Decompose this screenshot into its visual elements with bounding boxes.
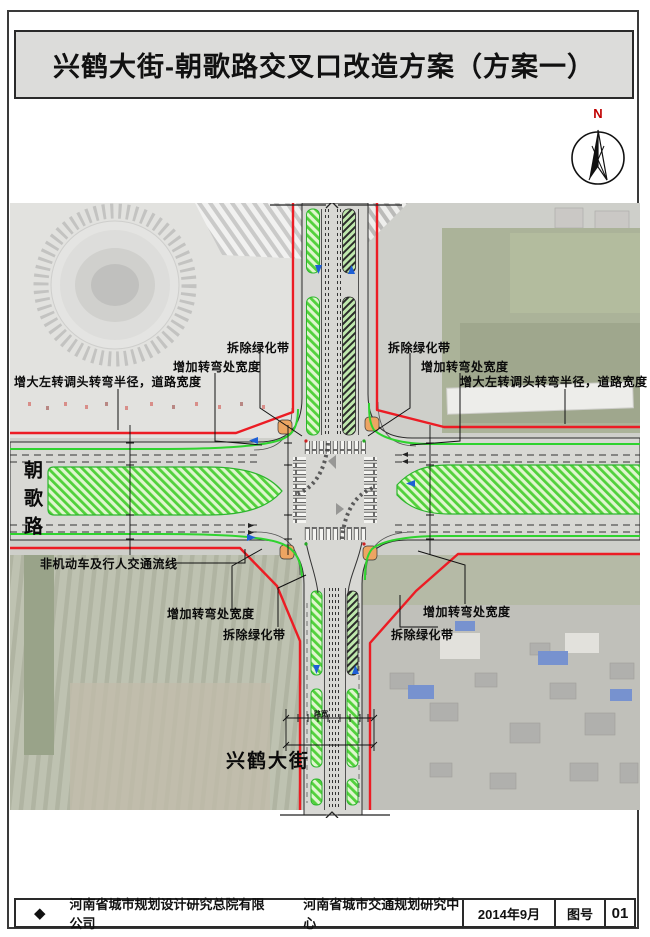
dimension-label: 路宽 [314, 709, 328, 719]
callout-lower-left-nonmotor-flow: 非机动车及行人交通流线 [40, 555, 178, 572]
road-label-south: 兴鹤大街 [226, 746, 310, 773]
company-logo-diamond-icon: ◆ [34, 906, 46, 921]
callout-upper-left-enlarge-radius: 增大左转调头转弯半径，道路宽度 [14, 373, 202, 390]
footer-org1: 河南省城市规划设计研究总院有限公司 [70, 894, 278, 932]
callout-lower-left-demolish-greenbelt: 拆除绿化带 [223, 626, 286, 643]
title-block: 兴鹤大街-朝歌路交叉口改造方案（方案一） [14, 30, 634, 99]
page-title: 兴鹤大街-朝歌路交叉口改造方案（方案一） [53, 45, 595, 84]
callout-upper-right-enlarge-radius: 增大左转调头转弯半径，道路宽度 [460, 373, 648, 390]
drawing-sheet: 兴鹤大街-朝歌路交叉口改造方案（方案一） N [0, 0, 650, 937]
plan-drawing [10, 203, 640, 818]
north-label: N [556, 106, 640, 121]
callout-upper-right-demolish-greenbelt: 拆除绿化带 [388, 339, 451, 356]
road-label-west: 朝歌路 [18, 460, 45, 544]
footer-orgs: ◆ 河南省城市规划设计研究总院有限公司 河南省城市交通规划研究中心 [16, 900, 462, 926]
footer-sheet-label: 图号 [554, 900, 604, 926]
map-canvas [10, 203, 640, 818]
callout-lower-right-widen-turn: 增加转弯处宽度 [423, 603, 511, 620]
callout-upper-left-demolish-greenbelt: 拆除绿化带 [227, 339, 290, 356]
footer-date: 2014年9月 [462, 900, 554, 926]
callout-lower-left-widen-turn: 增加转弯处宽度 [167, 605, 255, 622]
callout-lower-right-demolish-greenbelt: 拆除绿化带 [391, 626, 454, 643]
north-arrow: N [556, 106, 640, 192]
footer-sheet-number: 01 [604, 900, 634, 926]
footer-title-bar: ◆ 河南省城市规划设计研究总院有限公司 河南省城市交通规划研究中心 2014年9… [14, 898, 636, 928]
footer-org2: 河南省城市交通规划研究中心 [303, 894, 462, 932]
